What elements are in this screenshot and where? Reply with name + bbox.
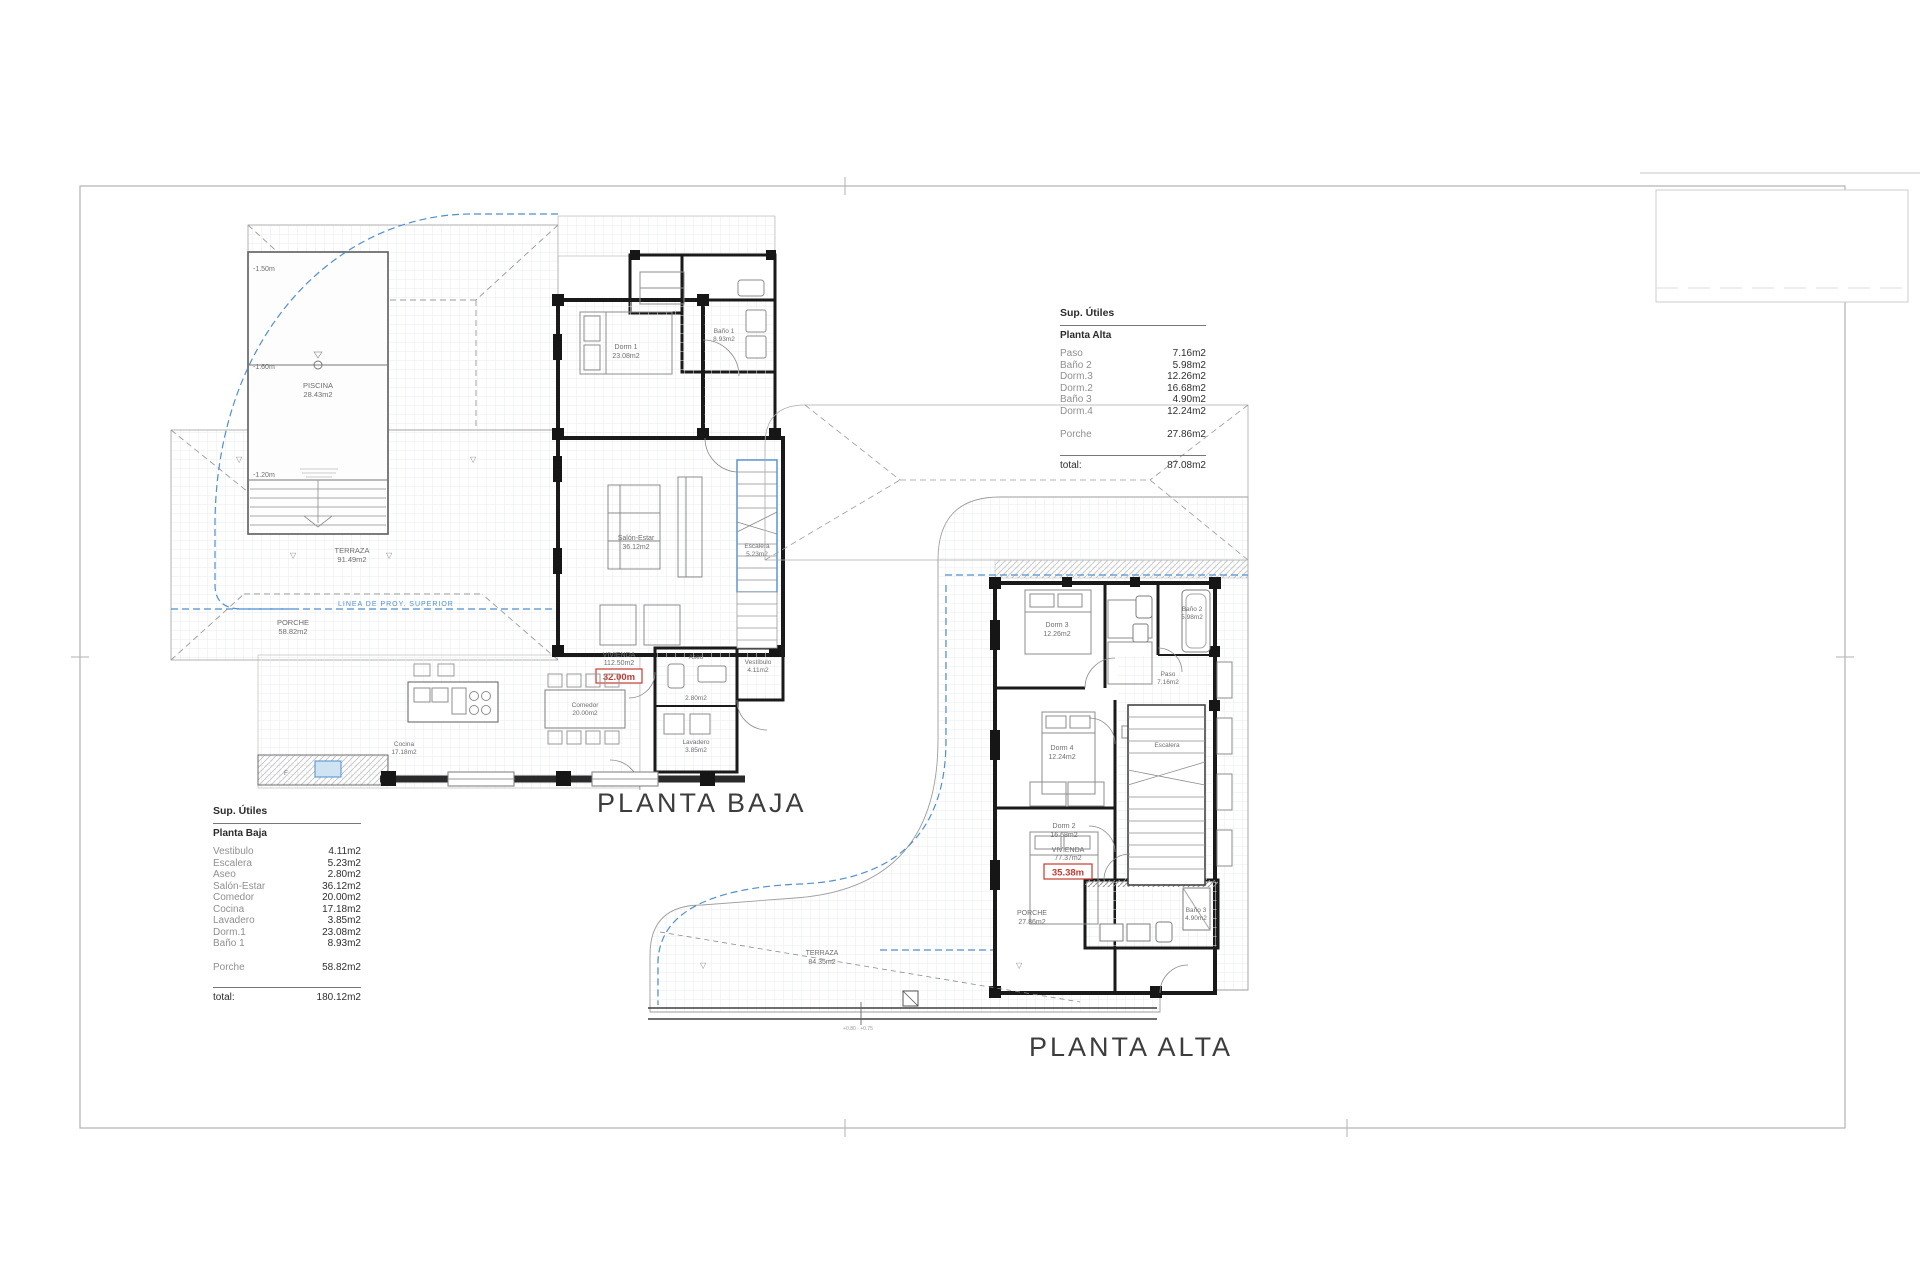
planta-alta-title: PLANTA ALTA bbox=[1029, 1032, 1233, 1063]
washer-icon bbox=[664, 714, 684, 734]
svg-text:▽: ▽ bbox=[700, 961, 707, 970]
toilet-icon bbox=[738, 280, 764, 296]
pool-level-top: -1.50m bbox=[253, 266, 275, 273]
porche-baja-label: PORCHE bbox=[277, 618, 309, 627]
planta-baja-title: PLANTA BAJA bbox=[597, 788, 807, 819]
aseo-area: 2.80m2 bbox=[685, 695, 707, 702]
divider bbox=[1060, 325, 1206, 326]
dorm1-label: Dorm 1 bbox=[615, 344, 638, 351]
table-header: Sup. Útiles bbox=[1060, 308, 1206, 323]
table-row: Baño 18.93m2 bbox=[213, 938, 361, 950]
pool-level-bottom: -1.20m bbox=[253, 472, 275, 479]
table-row: Baño 25.98m2 bbox=[1060, 360, 1206, 372]
toilet-icon bbox=[1136, 596, 1152, 618]
sink-icon bbox=[1133, 624, 1148, 642]
sink-icon bbox=[698, 666, 726, 682]
porche-alta-area: 27.86m2 bbox=[1018, 919, 1045, 926]
stairs-alta: Escalera bbox=[1128, 705, 1205, 885]
paso-label: Paso bbox=[1161, 671, 1176, 678]
escalera-baja-label: Escalera bbox=[744, 543, 770, 550]
table-subheader: Planta Baja bbox=[213, 828, 361, 840]
vestibulo-label: Vestíbulo bbox=[745, 659, 772, 666]
paso-area: 7.16m2 bbox=[1157, 679, 1179, 686]
comedor-area: 20.00m2 bbox=[572, 710, 598, 717]
pool-level-mid: -1.60m bbox=[253, 364, 275, 371]
terraza-baja-area: 91.49m2 bbox=[337, 555, 366, 564]
vivienda-alta-area: 77.37m2 bbox=[1054, 855, 1081, 862]
sink-icon bbox=[746, 310, 766, 332]
pool: -1.50m -1.60m -1.20m PISCINA 28.43m2 bbox=[248, 252, 388, 534]
salon-label: Salón-Estar bbox=[618, 535, 655, 542]
linea-proyeccion-baja-label: LINEA DE PROY. SUPERIOR bbox=[338, 601, 454, 608]
vivienda-baja-area: 112.50m2 bbox=[604, 660, 635, 667]
drawing-sheet: -1.50m -1.60m -1.20m PISCINA 28.43m2 LIN… bbox=[0, 0, 1920, 1280]
nivel-alta-value: 35.38m bbox=[1052, 868, 1084, 879]
aseo-label: Aseo bbox=[689, 654, 704, 661]
table-total-row: total:180.12m2 bbox=[213, 992, 361, 1004]
svg-text:▽: ▽ bbox=[236, 455, 243, 464]
dryer-icon bbox=[690, 714, 710, 734]
bano1-area: 8.93m2 bbox=[713, 336, 735, 343]
table-subheader: Planta Alta bbox=[1060, 330, 1206, 342]
escalera-alta-label: Escalera bbox=[1154, 742, 1180, 749]
table-row: Salón-Estar36.12m2 bbox=[213, 881, 361, 893]
table-row: Lavadero3.85m2 bbox=[213, 915, 361, 927]
table-row: Dorm.412.24m2 bbox=[1060, 406, 1206, 418]
dorm4-area: 12.24m2 bbox=[1048, 754, 1075, 761]
svg-text:▽: ▽ bbox=[386, 551, 393, 560]
piscina-area: 28.43m2 bbox=[303, 390, 332, 399]
sink-icon bbox=[1100, 924, 1123, 941]
table-row-porche: Porche27.86m2 bbox=[1060, 429, 1206, 441]
table-header: Sup. Útiles bbox=[213, 806, 361, 821]
table-row: Escalera5.23m2 bbox=[213, 858, 361, 870]
svg-text:▽: ▽ bbox=[1016, 961, 1023, 970]
cocina-area: 17.18m2 bbox=[391, 749, 417, 756]
table-total-row: total:87.08m2 bbox=[1060, 460, 1206, 472]
nivel-alta-badge: 35.38m bbox=[1044, 864, 1092, 879]
toilet-icon bbox=[1156, 922, 1172, 942]
bano2-label: Baño 2 bbox=[1182, 606, 1203, 613]
bano3-label: Baño 3 bbox=[1186, 907, 1207, 914]
cocina-label: Cocina bbox=[394, 741, 415, 748]
svg-text:▽: ▽ bbox=[470, 455, 477, 464]
dorm1-area: 23.08m2 bbox=[612, 353, 639, 360]
divider bbox=[1060, 455, 1206, 456]
lavadero-label: Lavadero bbox=[682, 739, 709, 746]
sink-icon bbox=[746, 336, 766, 358]
lavadero-area: 3.85m2 bbox=[685, 747, 707, 754]
divider bbox=[213, 987, 361, 988]
table-row: Baño 34.90m2 bbox=[1060, 394, 1206, 406]
stairs-baja: Escalera 5.23m2 bbox=[737, 460, 777, 648]
table-row: Comedor20.00m2 bbox=[213, 892, 361, 904]
bano2-area: 5.98m2 bbox=[1181, 614, 1203, 621]
table-row: Cocina17.18m2 bbox=[213, 904, 361, 916]
floorplan-drawing: -1.50m -1.60m -1.20m PISCINA 28.43m2 LIN… bbox=[0, 0, 1920, 1280]
terrace-note: +0.80 · +0.75 bbox=[843, 1026, 873, 1032]
table-row: Dorm.312.26m2 bbox=[1060, 371, 1206, 383]
bano1-label: Baño 1 bbox=[714, 328, 735, 335]
dorm2-area: 16.68m2 bbox=[1050, 832, 1077, 839]
dorm4-label: Dorm 4 bbox=[1051, 745, 1074, 752]
area-table-planta-baja: Sup. Útiles Planta Baja Vestibulo4.11m2 … bbox=[213, 806, 361, 1004]
table-row: Aseo2.80m2 bbox=[213, 869, 361, 881]
toilet-icon bbox=[668, 664, 684, 688]
planta-baja-plan: -1.50m -1.60m -1.20m PISCINA 28.43m2 LIN… bbox=[171, 214, 783, 790]
terraza-alta-area: 84.35m2 bbox=[808, 959, 835, 966]
table-row-porche: Porche58.82m2 bbox=[213, 962, 361, 974]
svg-text:▽: ▽ bbox=[290, 551, 297, 560]
outdoor-sink-icon bbox=[315, 761, 341, 777]
sink-icon bbox=[1127, 924, 1150, 941]
area-table-planta-alta: Sup. Útiles Planta Alta Paso7.16m2 Baño … bbox=[1060, 308, 1206, 471]
table-row: Vestibulo4.11m2 bbox=[213, 846, 361, 858]
svg-text:F: F bbox=[284, 770, 288, 777]
vivienda-alta-label: VIVIENDA bbox=[1052, 847, 1085, 854]
terraza-alta-label: TERRAZA bbox=[806, 950, 839, 957]
porche-alta-label: PORCHE bbox=[1017, 910, 1047, 917]
table-row: Dorm.123.08m2 bbox=[213, 927, 361, 939]
piscina-label: PISCINA bbox=[303, 381, 333, 390]
vestibulo-area: 4.11m2 bbox=[747, 667, 769, 674]
dorm3-area: 12.26m2 bbox=[1043, 631, 1070, 638]
dorm3-label: Dorm 3 bbox=[1046, 622, 1069, 629]
comedor-label: Comedor bbox=[572, 702, 600, 709]
divider bbox=[213, 823, 361, 824]
table-row: Dorm.216.68m2 bbox=[1060, 383, 1206, 395]
dorm2-label: Dorm 2 bbox=[1053, 823, 1076, 830]
table-row: Paso7.16m2 bbox=[1060, 348, 1206, 360]
bano3-area: 4.90m2 bbox=[1185, 915, 1207, 922]
titleblock-viewport bbox=[1656, 190, 1908, 302]
porche-baja-area: 58.82m2 bbox=[278, 627, 307, 636]
terraza-baja-label: TERRAZA bbox=[334, 546, 369, 555]
vivienda-baja-label: VIVIENDA bbox=[603, 652, 636, 659]
salon-area: 36.12m2 bbox=[622, 544, 649, 551]
